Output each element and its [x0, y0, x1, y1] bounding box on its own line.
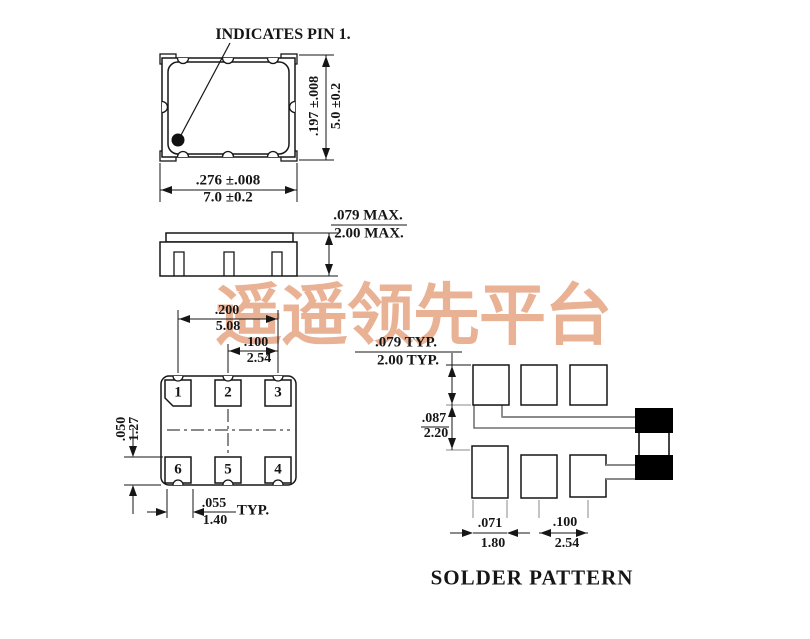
bottom-view-drawing: [124, 310, 296, 518]
side-lid: [166, 233, 293, 242]
pad-number-4: 4: [274, 463, 282, 478]
pad-number-6: 6: [174, 463, 182, 478]
solder-pattern-drawing: [355, 352, 673, 537]
pad-number-5: 5: [224, 463, 232, 478]
pad-number-1: 1: [174, 386, 182, 401]
sp-pad-2: [521, 365, 557, 405]
sp-pad-4: [570, 455, 636, 497]
sp-row-gap-mm-label: 2.20: [424, 427, 449, 441]
bottom-pad-width-inch-label: .055: [202, 497, 227, 511]
pad-number-2: 2: [224, 386, 232, 401]
bottom-pad-height-mm-label: 1.27: [128, 417, 142, 442]
side-height-inch-label: .079 MAX.: [333, 209, 403, 224]
feedthrough-pad-bottom: [635, 455, 673, 480]
pin1-callout-label: INDICATES PIN 1.: [215, 27, 350, 43]
sp-pad-5: [521, 455, 557, 498]
sp-pitch-inch-label: .100: [553, 516, 578, 530]
bottom-pitch-inch-label: .100: [244, 336, 269, 350]
drawing-linework: [0, 0, 810, 639]
pin1-dot: [172, 134, 185, 147]
bottom-pad-width-typ-label: TYP.: [237, 504, 269, 519]
bottom-pad-width-mm-label: 1.40: [203, 514, 228, 528]
sp-pad-width-inch-label: .071: [478, 517, 503, 531]
sp-pad-height-inch-label: .079 TYP.: [375, 336, 437, 351]
pad-number-3: 3: [274, 386, 282, 401]
sp-pad-height-mm-label: 2.00 TYP.: [377, 354, 439, 369]
side-height-mm-label: 2.00 MAX.: [334, 227, 404, 242]
bottom-pitch-mm-label: 2.54: [247, 352, 272, 366]
sp-pad-6: [472, 446, 508, 498]
top-width-mm-label: 7.0 ±0.2: [203, 191, 252, 206]
sp-pad-width-mm-label: 1.80: [481, 537, 506, 551]
sp-pad-3: [570, 365, 607, 405]
top-width-inch-label: .276 ±.008: [196, 174, 260, 189]
bottom-span-mm-label: 5.08: [216, 320, 241, 334]
sp-row-gap-inch-label: .087: [422, 412, 447, 426]
package-lid-outline: [168, 62, 289, 154]
sp-pitch-mm-label: 2.54: [555, 537, 580, 551]
solder-pattern-title: SOLDER PATTERN: [431, 568, 634, 589]
top-height-inch-label: .197 ±.008: [308, 76, 322, 136]
drawing-sheet: 遥遥领先平台: [0, 0, 810, 639]
top-height-mm-label: 5.0 ±0.2: [330, 83, 344, 129]
side-body: [160, 242, 297, 276]
sp-pad-1: [473, 365, 509, 405]
bottom-span-inch-label: .200: [215, 304, 240, 318]
feedthrough-pad-top: [635, 408, 673, 433]
